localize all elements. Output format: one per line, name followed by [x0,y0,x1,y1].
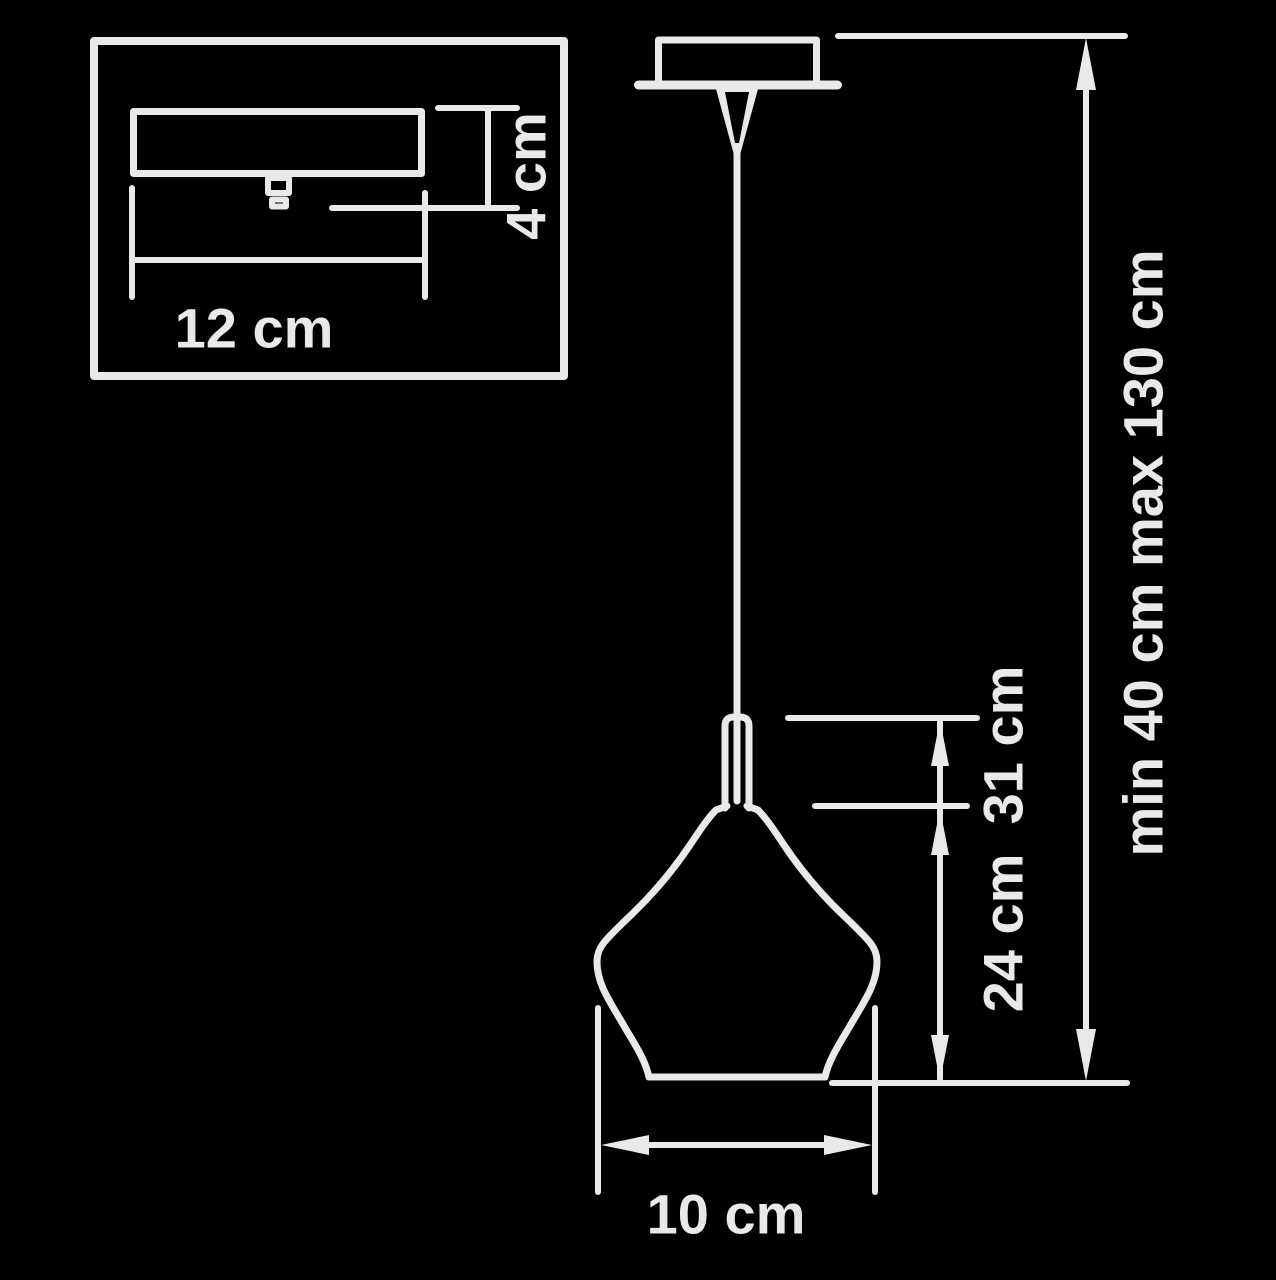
arrow-up-suspension [1076,38,1096,90]
inset-canopy-profile [134,112,422,174]
canopy-flange [634,81,842,90]
inset-mount-detail: 12 cm 4 cm [94,41,564,376]
label-canopy-width: 12 cm [175,297,334,360]
label-shade-height: 24 cm [972,854,1035,1013]
arrow-up-shade-height [931,809,949,855]
arrow-down-suspension [1076,1029,1096,1081]
label-canopy-height: 4 cm [495,112,558,240]
lamp-dimension-drawing: 12 cm 4 cm [0,0,1276,1280]
pendant-fixture [597,40,877,1077]
label-suspension-range: min 40 cm max 130 cm [1112,249,1175,856]
arrow-down-heights [931,1035,949,1081]
glass-shade-outline [597,806,877,1077]
label-shade-diameter: 10 cm [647,1183,806,1246]
label-fixture-height: 31 cm [972,666,1035,825]
inset-connector-upper [268,178,289,193]
dimension-annotations: 31 cm 24 cm min 40 cm max 130 cm 10 cm [598,36,1175,1246]
arrow-right-diameter [824,1135,872,1155]
canopy-body [659,40,817,84]
inset-connector-lower [272,200,286,207]
diagram-canvas: 12 cm 4 cm [0,0,1276,1280]
arrow-up-fixture-height [931,720,949,766]
arrow-left-diameter [601,1135,649,1155]
